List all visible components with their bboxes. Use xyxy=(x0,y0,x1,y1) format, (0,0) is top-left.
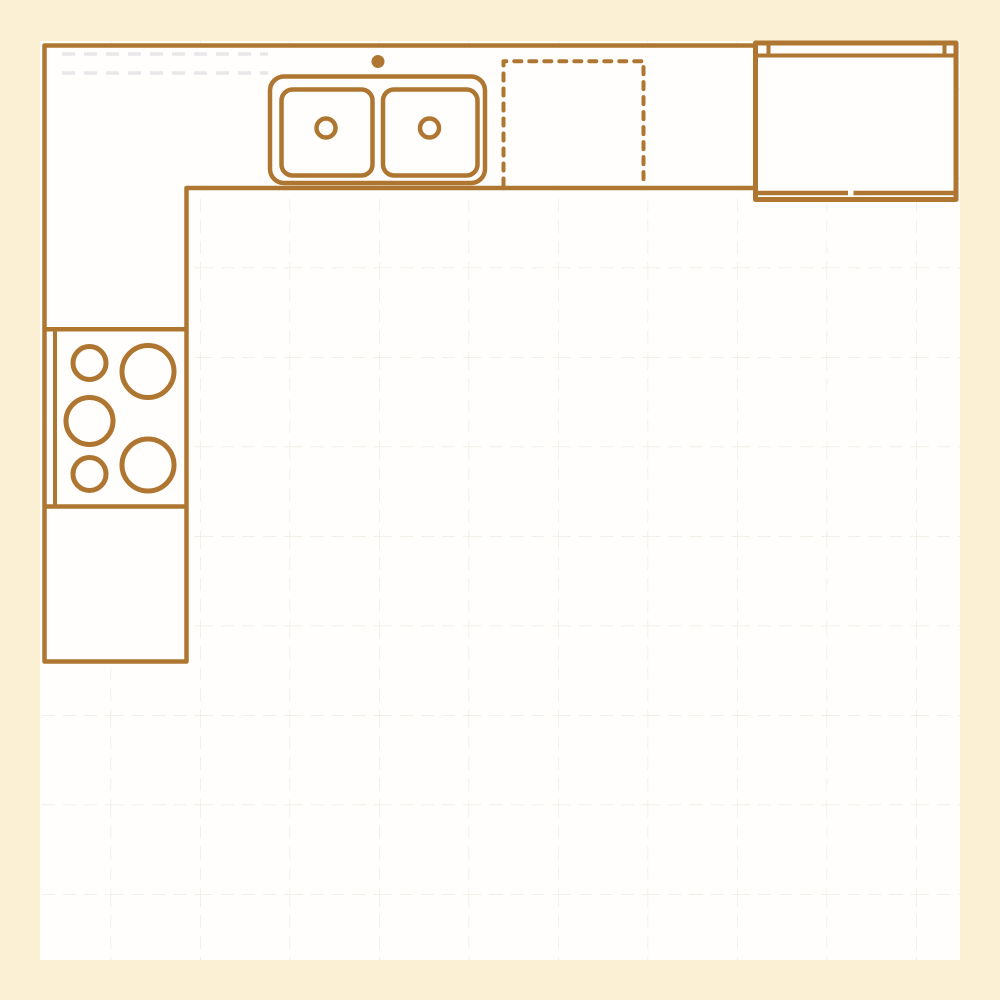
refrigerator[interactable] xyxy=(756,43,957,200)
kitchen-floor-plan xyxy=(0,0,1000,1000)
faucet-dot xyxy=(372,55,385,68)
sink-outer-rim xyxy=(270,77,485,184)
refrigerator-body xyxy=(756,43,957,200)
planner-canvas xyxy=(0,0,1000,1000)
